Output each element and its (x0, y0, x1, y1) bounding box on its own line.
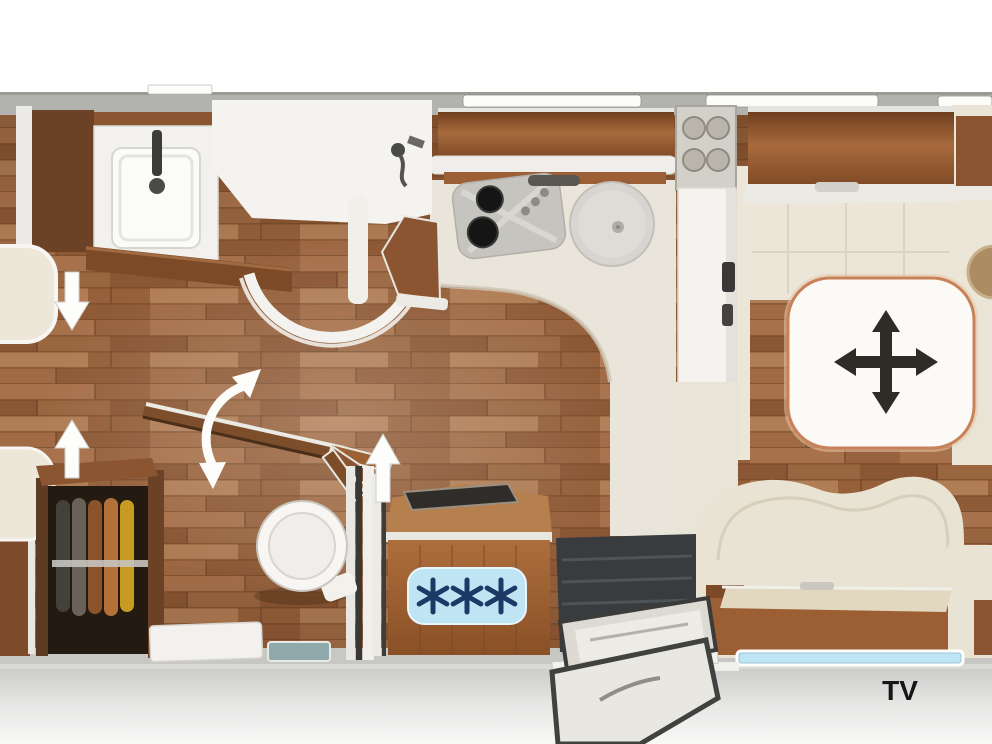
chest-handle (800, 582, 834, 590)
wardrobe-side (36, 478, 48, 656)
wall-window (463, 95, 641, 107)
cabinet-handle (722, 304, 733, 326)
worktop-front-roll (428, 156, 678, 174)
tv-label: TV (882, 675, 918, 706)
locker-latch (815, 182, 859, 192)
chest-top (720, 588, 952, 612)
tall-cabinet (676, 188, 738, 538)
wardrobe (36, 458, 164, 658)
dinette-table (788, 278, 974, 448)
shower-divider (348, 196, 368, 304)
bed-corner (0, 246, 56, 342)
caravan-floorplan: TV (0, 0, 992, 744)
entrance (552, 534, 719, 744)
shower-mat (149, 622, 262, 662)
shower-tray (212, 100, 432, 224)
cabinet-handle (722, 262, 735, 292)
three-snowflakes-icon (419, 580, 515, 612)
background-bottom (0, 664, 992, 744)
bathroom-wall (346, 466, 374, 660)
kitchen-faucet (528, 175, 580, 186)
floor-hatch (268, 642, 330, 661)
floorplan-svg: TV (0, 0, 992, 744)
clothes-rail (52, 560, 152, 567)
heater-vent (676, 106, 736, 190)
kitchen-overhead-locker (438, 112, 674, 158)
fridge (372, 476, 552, 656)
background-top (0, 0, 992, 95)
basin-faucet (152, 130, 162, 176)
hanging-clothes (56, 498, 134, 616)
sideboard-chest (706, 582, 952, 655)
roof-box (148, 85, 212, 94)
kitchen-sink (570, 182, 654, 266)
bed-headboard (32, 110, 94, 252)
